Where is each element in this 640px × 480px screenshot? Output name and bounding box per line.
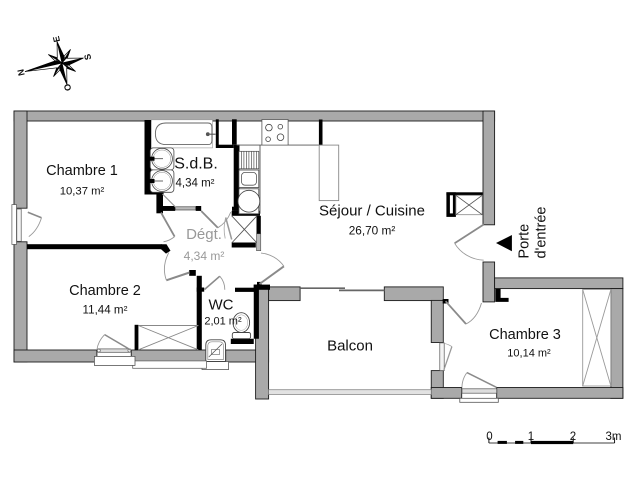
svg-text:Séjour / Cuisine: Séjour / Cuisine xyxy=(319,203,425,220)
svg-text:S.d.B.: S.d.B. xyxy=(174,156,218,173)
svg-text:2: 2 xyxy=(570,431,576,443)
svg-text:Chambre 1: Chambre 1 xyxy=(46,163,118,179)
svg-text:Chambre 2: Chambre 2 xyxy=(69,283,141,299)
svg-text:0: 0 xyxy=(486,431,492,443)
svg-text:2,01 m²: 2,01 m² xyxy=(204,316,242,328)
svg-text:Dégt.: Dégt. xyxy=(186,226,222,243)
svg-text:11,44 m²: 11,44 m² xyxy=(83,304,128,317)
svg-text:26,70 m²: 26,70 m² xyxy=(349,224,396,238)
svg-text:3m: 3m xyxy=(606,431,622,443)
svg-text:d'entrée: d'entrée xyxy=(534,207,550,259)
svg-text:Balcon: Balcon xyxy=(327,338,373,355)
svg-text:4,34 m²: 4,34 m² xyxy=(176,178,215,190)
svg-text:Chambre 3: Chambre 3 xyxy=(489,327,561,343)
svg-text:1: 1 xyxy=(528,431,534,443)
svg-text:10,37 m²: 10,37 m² xyxy=(60,186,105,198)
svg-text:Porte: Porte xyxy=(517,224,533,259)
svg-text:4,34 m²: 4,34 m² xyxy=(184,249,225,263)
svg-text:WC: WC xyxy=(209,297,234,314)
svg-text:10,14 m²: 10,14 m² xyxy=(507,348,551,360)
